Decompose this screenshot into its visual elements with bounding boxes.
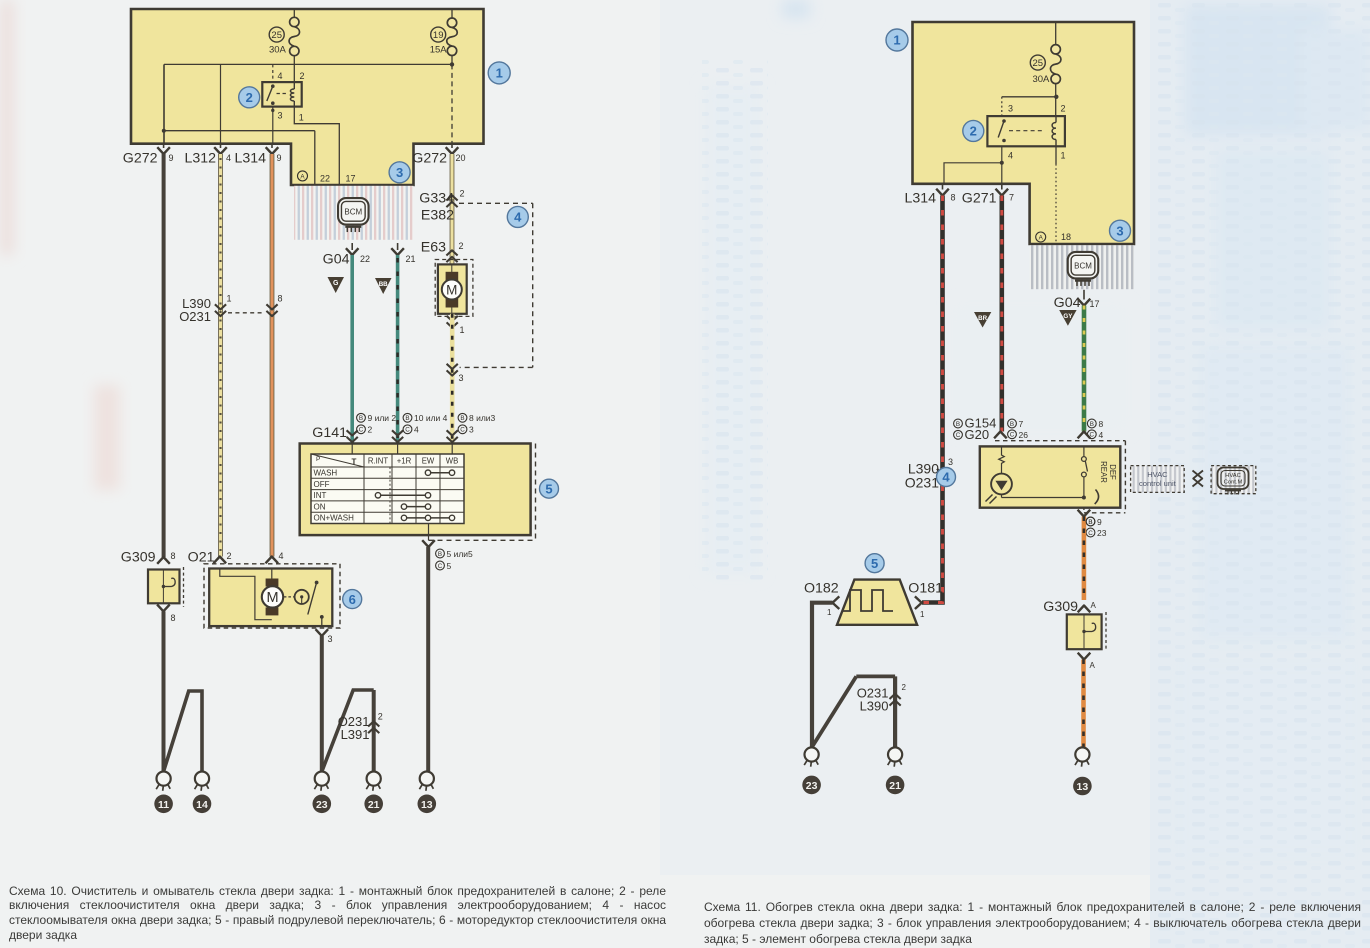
svg-text:8: 8	[278, 294, 283, 304]
svg-text:L390: L390	[860, 699, 889, 714]
svg-text:22: 22	[360, 254, 370, 264]
svg-text:5: 5	[871, 556, 878, 571]
svg-text:O21: O21	[188, 550, 215, 566]
svg-text:L314: L314	[234, 151, 266, 167]
svg-text:14: 14	[196, 799, 208, 811]
svg-text:3: 3	[1116, 223, 1123, 238]
svg-text:L312: L312	[184, 151, 216, 167]
svg-text:BB: BB	[379, 281, 388, 288]
svg-text:A: A	[1091, 601, 1097, 610]
svg-text:2: 2	[970, 124, 977, 139]
svg-text:3: 3	[396, 165, 403, 180]
svg-text:3: 3	[948, 457, 953, 467]
svg-text:1: 1	[227, 294, 232, 304]
svg-text:5 или5: 5 или5	[447, 549, 474, 559]
svg-text:C: C	[1010, 432, 1015, 439]
svg-text:M: M	[266, 590, 278, 606]
svg-text:ON: ON	[314, 502, 326, 511]
svg-text:O182: O182	[804, 581, 839, 597]
svg-text:23: 23	[316, 799, 328, 811]
svg-text:9 или 2: 9 или 2	[368, 413, 397, 423]
svg-text:E63: E63	[421, 240, 446, 256]
svg-text:4: 4	[1008, 151, 1013, 161]
svg-text:7: 7	[1019, 419, 1024, 429]
svg-text:10 или 4: 10 или 4	[414, 413, 448, 423]
svg-text:E382: E382	[421, 208, 454, 224]
svg-text:B: B	[438, 551, 442, 558]
svg-text:B: B	[1088, 519, 1092, 526]
svg-text:B: B	[405, 415, 409, 422]
svg-text:G309: G309	[1043, 599, 1078, 615]
svg-text:P: P	[316, 456, 320, 463]
svg-text:21: 21	[406, 254, 416, 264]
svg-text:4: 4	[278, 71, 283, 81]
svg-text:2: 2	[246, 90, 253, 105]
svg-text:B: B	[956, 421, 960, 428]
svg-text:L391: L391	[341, 727, 370, 742]
svg-text:21: 21	[889, 780, 901, 792]
svg-text:O231: O231	[179, 309, 211, 324]
svg-text:G141: G141	[312, 425, 347, 441]
svg-text:G04: G04	[1054, 295, 1081, 311]
svg-text:25: 25	[271, 30, 282, 41]
svg-text:G20: G20	[965, 427, 990, 442]
svg-text:T: T	[352, 458, 357, 467]
svg-text:13: 13	[421, 799, 433, 811]
svg-text:1: 1	[893, 33, 900, 48]
svg-text:2: 2	[460, 189, 465, 199]
svg-text:1: 1	[827, 608, 832, 617]
svg-text:4: 4	[1099, 430, 1104, 440]
svg-text:O181: O181	[908, 581, 943, 597]
svg-text:20: 20	[456, 153, 466, 163]
svg-text:23: 23	[806, 780, 818, 792]
svg-text:4: 4	[279, 551, 284, 561]
svg-text:4: 4	[942, 470, 950, 485]
svg-text:G334: G334	[419, 191, 454, 207]
svg-text:13: 13	[1077, 781, 1089, 793]
svg-text:BCM: BCM	[344, 207, 362, 216]
svg-text:2: 2	[368, 425, 373, 435]
svg-text:3: 3	[278, 111, 283, 121]
svg-text:+1R: +1R	[397, 457, 412, 466]
svg-text:GY: GY	[1063, 313, 1073, 320]
svg-text:5: 5	[545, 481, 552, 496]
svg-text:B: B	[1010, 421, 1014, 428]
svg-text:C: C	[460, 427, 465, 434]
svg-text:17: 17	[1090, 299, 1100, 309]
svg-text:4: 4	[514, 210, 522, 225]
svg-text:HVAC: HVAC	[1225, 473, 1241, 479]
svg-text:6: 6	[349, 592, 356, 607]
svg-text:2: 2	[300, 71, 305, 81]
svg-text:BCM: BCM	[1074, 261, 1092, 270]
svg-text:17: 17	[346, 174, 356, 184]
svg-text:REAR: REAR	[1099, 461, 1108, 483]
svg-text:25: 25	[1033, 58, 1044, 69]
svg-text:2: 2	[227, 551, 232, 561]
svg-text:WB: WB	[446, 457, 459, 466]
svg-text:8: 8	[951, 193, 956, 203]
svg-text:22: 22	[320, 174, 330, 184]
svg-text:4: 4	[414, 425, 419, 435]
svg-text:A: A	[1090, 661, 1096, 670]
svg-text:7: 7	[1009, 193, 1014, 203]
svg-text:O231: O231	[905, 475, 939, 491]
svg-text:1: 1	[496, 66, 503, 81]
svg-text:Cont.M: Cont.M	[1224, 480, 1243, 486]
svg-text:2: 2	[378, 712, 383, 722]
svg-text:L314: L314	[904, 191, 936, 207]
svg-text:1: 1	[299, 113, 304, 123]
svg-text:G272: G272	[123, 151, 158, 167]
svg-text:9: 9	[277, 153, 282, 163]
svg-text:23: 23	[1097, 528, 1107, 538]
svg-text:G: G	[333, 280, 339, 287]
svg-text:2: 2	[902, 683, 907, 692]
svg-text:G309: G309	[121, 550, 156, 566]
svg-text:30A: 30A	[269, 45, 287, 56]
svg-text:C: C	[956, 432, 961, 439]
svg-text:C: C	[1088, 530, 1093, 537]
svg-text:1: 1	[1061, 151, 1066, 161]
svg-text:4: 4	[226, 153, 231, 163]
svg-text:8: 8	[171, 613, 176, 623]
svg-text:30A: 30A	[1032, 74, 1050, 85]
svg-text:B: B	[460, 415, 464, 422]
svg-text:ON+WASH: ON+WASH	[314, 514, 355, 523]
svg-text:INT: INT	[314, 491, 327, 500]
svg-text:9: 9	[169, 153, 174, 163]
svg-text:19: 19	[433, 30, 444, 41]
svg-text:C: C	[405, 427, 410, 434]
svg-text:EW: EW	[422, 457, 435, 466]
svg-text:G272: G272	[412, 151, 447, 167]
svg-text:26: 26	[1019, 430, 1029, 440]
svg-text:B: B	[359, 415, 363, 422]
svg-text:5: 5	[447, 561, 452, 571]
svg-text:C: C	[359, 427, 364, 434]
svg-text:2: 2	[1061, 104, 1066, 114]
svg-text:3: 3	[1008, 104, 1013, 114]
svg-text:8: 8	[1099, 419, 1104, 429]
svg-text:15A: 15A	[430, 45, 448, 56]
svg-text:WASH: WASH	[314, 469, 338, 478]
svg-text:8 или3: 8 или3	[469, 413, 496, 423]
svg-text:DEF: DEF	[1108, 464, 1117, 480]
svg-text:B: B	[1090, 421, 1094, 428]
svg-text:M: M	[446, 282, 457, 297]
svg-text:G04: G04	[323, 252, 350, 268]
svg-text:C: C	[438, 563, 443, 570]
svg-text:3: 3	[459, 373, 464, 383]
svg-text:control unit: control unit	[1139, 479, 1177, 488]
svg-text:9: 9	[1097, 517, 1102, 527]
svg-text:21: 21	[368, 799, 380, 811]
svg-text:3: 3	[328, 634, 333, 644]
svg-text:HVAC: HVAC	[1147, 470, 1168, 479]
svg-text:18: 18	[1061, 232, 1071, 242]
svg-text:OFF: OFF	[314, 480, 330, 489]
svg-text:R.INT: R.INT	[368, 457, 389, 466]
svg-text:1: 1	[460, 325, 465, 335]
svg-text:BR: BR	[978, 315, 987, 322]
svg-text:2: 2	[459, 241, 464, 251]
svg-text:8: 8	[171, 551, 176, 561]
svg-text:11: 11	[158, 799, 169, 811]
svg-text:1: 1	[920, 610, 925, 619]
svg-text:3: 3	[469, 425, 474, 435]
svg-text:G271: G271	[962, 191, 997, 207]
